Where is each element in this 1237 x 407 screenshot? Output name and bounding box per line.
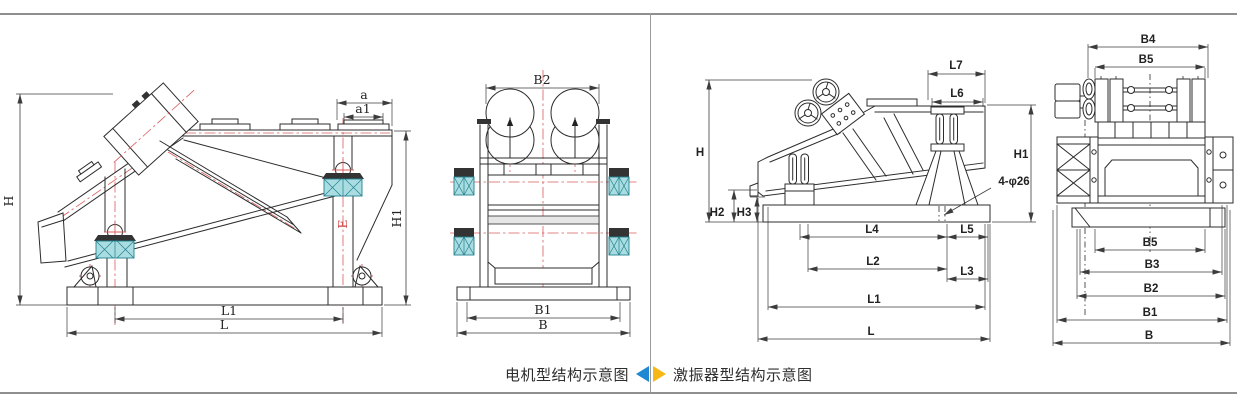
motor-cylinder xyxy=(93,67,211,182)
motor-side-view: H a a1 H1 E L1 L xyxy=(1,67,411,337)
dim-label-l5: L5 xyxy=(960,224,974,236)
dim-label-l7: L7 xyxy=(949,60,962,72)
dim-label-b5-top: B5 xyxy=(1139,54,1154,66)
motor-front-view: B2 B1 B xyxy=(450,70,638,337)
dim-label-h3: H3 xyxy=(737,207,752,219)
dim-label-h: H xyxy=(696,147,704,159)
dim-label-l2: L2 xyxy=(866,256,879,268)
bolt-hole-note: 4-φ26 xyxy=(998,176,1029,188)
dim-label-l: L xyxy=(220,317,228,332)
dim-label-a1: a1 xyxy=(355,101,370,116)
dim-label-b5: B5 xyxy=(1143,237,1158,249)
dim-label-b1: B1 xyxy=(534,302,551,317)
dim-label-b: B xyxy=(538,317,547,332)
dim-label-l3: L3 xyxy=(960,266,973,278)
motor-caption-text: 电机型结构示意图 xyxy=(505,364,629,385)
dim-label-l: L xyxy=(867,326,874,338)
exciter-side-dimensions: L7 L6 H H1 H2 H3 4-φ26 L4 xyxy=(696,60,1036,342)
schematic-panel: H a a1 H1 E L1 L xyxy=(0,0,1237,407)
exciter-front-view: B4 B5 B5 B3 B2 B1 B xyxy=(1053,34,1233,346)
dim-label-l4: L4 xyxy=(865,224,879,236)
blue-left-triangle-icon xyxy=(636,366,649,382)
dim-label-b1: B1 xyxy=(1143,307,1158,319)
dim-label-b2: B2 xyxy=(533,72,550,87)
dim-label-h2: H2 xyxy=(710,207,725,219)
dim-label-a: a xyxy=(360,87,368,102)
technical-drawing: H a a1 H1 E L1 L xyxy=(0,0,1237,407)
dim-label-b: B xyxy=(1145,330,1153,342)
dim-label-h1: H1 xyxy=(389,209,404,228)
dim-label-b3: B3 xyxy=(1145,259,1160,271)
dim-label-l1: L1 xyxy=(867,294,881,306)
yellow-right-triangle-icon xyxy=(653,366,666,382)
dim-label-h1: H1 xyxy=(1014,149,1029,161)
dim-label-b4: B4 xyxy=(1141,34,1156,46)
dim-label-l6: L6 xyxy=(950,88,963,100)
dim-label-h: H xyxy=(1,195,16,206)
exciter-caption-text: 激振器型结构示意图 xyxy=(673,364,813,385)
motor-type-caption: 电机型结构示意图 xyxy=(505,364,649,384)
dim-label-l1: L1 xyxy=(221,303,237,318)
dim-label-e: E xyxy=(335,219,350,228)
dim-label-b2: B2 xyxy=(1144,283,1159,295)
exciter-side-view: L7 L6 H H1 H2 H3 4-φ26 L4 xyxy=(696,60,1036,342)
exciter-type-caption: 激振器型结构示意图 xyxy=(653,364,813,384)
